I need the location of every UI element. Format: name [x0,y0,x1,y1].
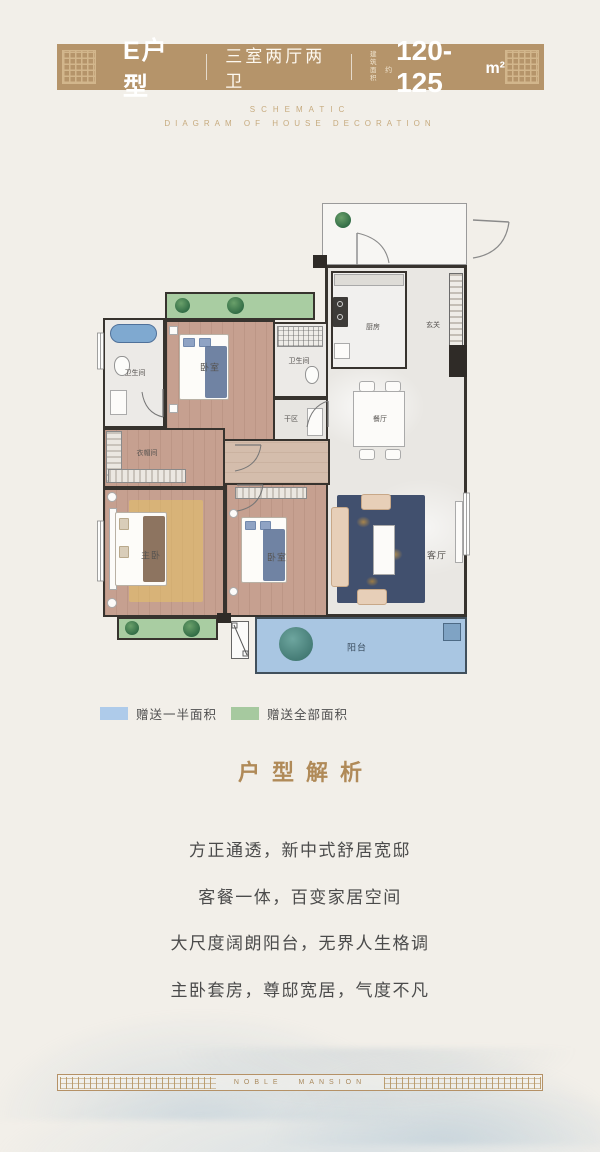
nightstand [107,598,117,608]
room-label-bedroom-mid: 卧室 [267,551,287,564]
pillow [183,338,195,347]
room-label-bath-left: 卫生间 [125,368,146,378]
wall-segment [313,255,327,268]
legend-label-half: 赠送一半面积 [136,704,217,723]
gift-balcony-top [165,292,315,320]
lattice-ornament-left-icon [62,50,96,84]
floor-plan: 卧室 卫生间 卫生间 干区 厨房 玄关 餐厅 衣帽间 主卧 卧室 客厅 阳台 [85,195,515,695]
wall-segment [217,613,231,623]
room-label-dining: 餐厅 [373,414,387,424]
stove [333,297,348,327]
legend-swatch-green [231,707,259,720]
ac-unit [231,621,249,659]
analysis-line-2: 客餐一体，百变家居空间 [0,883,600,908]
flyer-page: E户型 三室两厅两卫 建筑 面积 约 120-125 m² SCHEMATIC … [0,0,600,1152]
subtitle-line1: SCHEMATIC [0,105,600,114]
legend: 赠送一半面积 赠送全部面积 [100,704,348,723]
room-label-foyer: 玄关 [426,320,440,330]
unit-name: E户型 [123,31,188,103]
dining-chair [385,449,401,460]
header-divider-2 [351,54,352,80]
area-value: 120-125 [396,35,485,99]
entry-terrace [322,203,467,265]
lattice-ornament-right-icon [505,50,539,84]
vanity-sink [307,408,323,436]
room-label-master: 主卧 [141,549,161,562]
room-label-dry-area: 干区 [284,414,298,424]
mountain-wash [220,985,600,1145]
footer-brand: NOBLE MANSION [218,1075,382,1090]
header-band: E户型 三室两厅两卫 建筑 面积 约 120-125 m² [57,44,544,90]
analysis-title: 户型解析 [0,755,600,787]
sink [110,390,127,415]
room-label-living: 客厅 [427,549,447,562]
footer-lattice-right-icon [384,1077,541,1089]
legend-swatch-blue [100,707,128,720]
legend-item-half: 赠送一半面积 [100,704,217,723]
plant-icon [279,627,313,661]
dining-chair [385,381,401,392]
legend-label-full: 赠送全部面积 [267,704,348,723]
kitchen-sink [334,343,350,359]
toilet [305,366,319,384]
plant-icon [335,212,351,228]
plant-icon [175,298,190,313]
legend-item-full: 赠送全部面积 [231,704,348,723]
balcony-step [443,623,461,641]
area-note-line1: 建筑 [370,51,383,67]
nightstand [229,587,238,596]
room-label-cloakroom: 衣帽间 [137,448,158,458]
kitchen-counter [334,274,404,286]
room-label-bath-right: 卫生间 [289,356,310,366]
analysis-line-4: 主卧套房，尊邸宽居，气度不凡 [0,976,600,1001]
dry-area-room [273,398,328,443]
tv-console [455,501,463,563]
header-divider [206,54,207,80]
bedroom-top-room [165,320,275,443]
subtitle-line2: DIAGRAM OF HOUSE DECORATION [0,119,600,128]
armchair [361,494,391,510]
sofa [331,507,349,587]
room-label-bedroom-top: 卧室 [200,361,220,374]
pillow [119,518,129,530]
room-label-balcony: 阳台 [347,641,367,654]
plant-icon [227,297,244,314]
plant-icon [125,621,139,635]
coffee-table [373,525,395,575]
area-note-line2: 面积 [370,67,383,83]
dining-chair [359,381,375,392]
master-bedroom-room [103,488,225,617]
analysis-line-1: 方正通透，新中式舒居宽邸 [0,836,600,861]
armchair [357,589,387,605]
pillow [119,546,129,558]
area-group: 建筑 面积 约 120-125 m² [370,35,505,99]
area-note: 建筑 面积 [370,51,383,83]
foyer-cabinet [449,273,463,349]
nightstand [169,404,178,413]
area-unit: m² [485,60,505,78]
analysis-line-3: 大尺度阔朗阳台，无界人生格调 [0,929,600,954]
wall-segment [449,345,467,377]
room-label-kitchen: 厨房 [366,322,380,332]
hallway [220,439,330,485]
dining-chair [359,449,375,460]
nightstand [169,326,178,335]
bathtub [110,324,157,343]
area-note-suffix: 约 [385,65,392,75]
cloakroom-room [103,428,225,488]
washer-dryer [277,326,323,347]
plant-icon [183,620,200,637]
nightstand [229,509,238,518]
mountain-wash [40,1048,600,1148]
wardrobe [108,469,186,483]
footer-band: NOBLE MANSION [57,1074,543,1091]
layout-type: 三室两厅两卫 [225,42,333,92]
nightstand [107,492,117,502]
wardrobe [235,487,307,499]
pillow [245,521,256,530]
footer-lattice-left-icon [60,1077,217,1089]
gift-balcony-bottom [117,617,218,640]
